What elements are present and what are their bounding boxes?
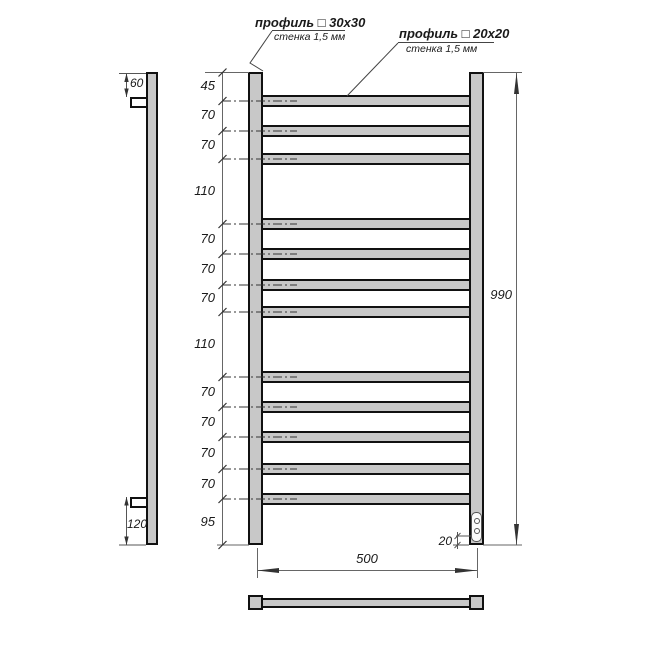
dim-label: 70 xyxy=(175,291,215,305)
dim-label-width: 500 xyxy=(340,552,394,566)
dim-label: 70 xyxy=(175,232,215,246)
dim-label-bracket-top: 60 xyxy=(130,76,143,90)
callout-profile-20x20: профиль □ 20x20 xyxy=(399,26,509,41)
dim-label: 70 xyxy=(175,108,215,122)
arrow-up-icon xyxy=(124,497,128,506)
arrow-up-icon xyxy=(124,74,128,83)
arrow-left-icon xyxy=(257,568,279,573)
dim-label: 45 xyxy=(175,79,215,93)
dim-label-bracket-bottom: 120 xyxy=(127,517,147,531)
dim-label-element-offset: 20 xyxy=(412,534,452,548)
callout-profile-30x30: профиль □ 30x30 xyxy=(255,15,365,30)
element-dim-20 xyxy=(453,532,471,549)
dim-label: 95 xyxy=(175,515,215,529)
rung-centerlines xyxy=(222,101,297,499)
dim-label: 70 xyxy=(175,262,215,276)
side-dim-lines xyxy=(119,73,146,545)
dim-label-height: 990 xyxy=(472,288,512,302)
arrow-down-icon xyxy=(124,537,128,546)
towel-rail-technical-drawing: профиль □ 30x30 стенка 1,5 мм профиль □ … xyxy=(0,0,650,650)
arrow-down-icon xyxy=(124,89,128,98)
callout-wall-30: стенка 1,5 мм xyxy=(274,31,345,43)
dim-label: 110 xyxy=(175,184,215,198)
arrow-right-icon xyxy=(455,568,477,573)
dimension-overlay xyxy=(0,0,650,650)
dim-label: 70 xyxy=(175,477,215,491)
dim-label: 110 xyxy=(175,337,215,351)
callout-wall-20: стенка 1,5 мм xyxy=(406,43,477,55)
height-dim-990 xyxy=(483,73,522,546)
arrow-down-icon xyxy=(514,524,519,545)
dim-label: 70 xyxy=(175,415,215,429)
dim-label: 70 xyxy=(175,385,215,399)
dim-label: 70 xyxy=(175,446,215,460)
dim-label: 70 xyxy=(175,138,215,152)
arrow-up-icon xyxy=(514,73,519,94)
